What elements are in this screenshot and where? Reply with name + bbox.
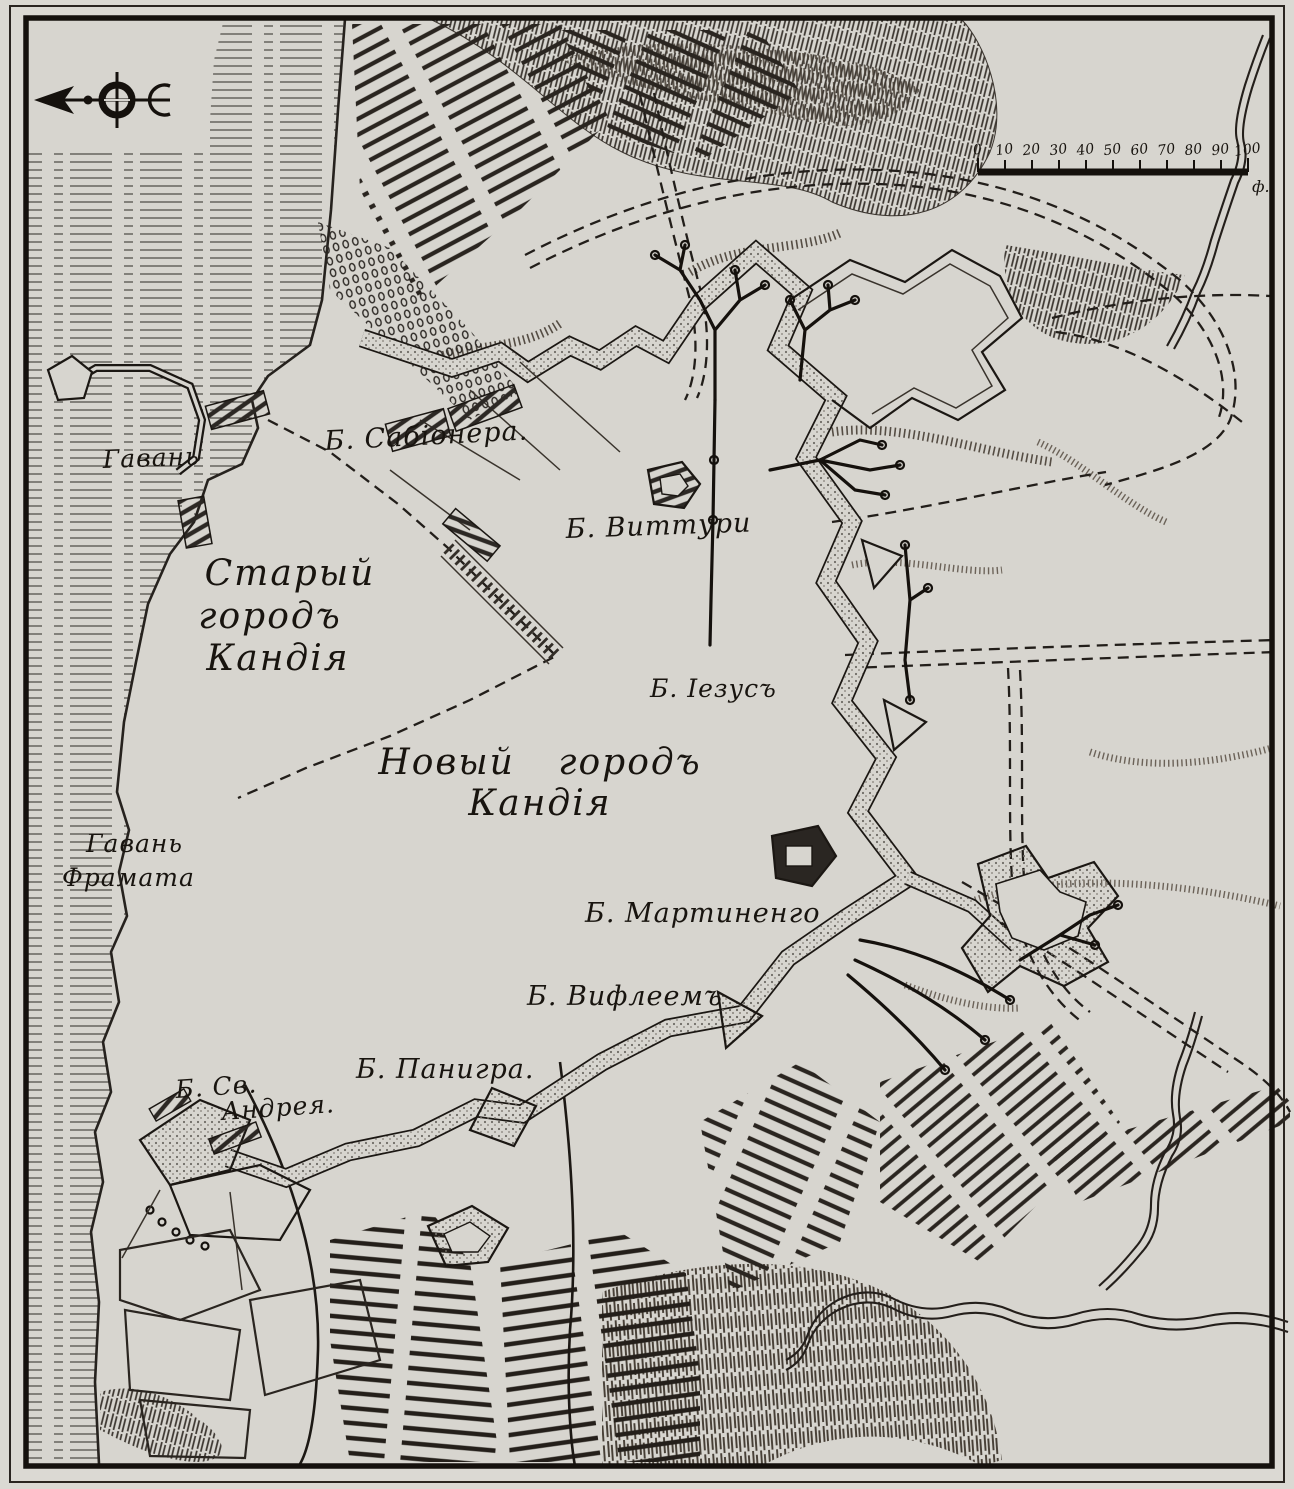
scale-tick-70: 70 (1157, 141, 1177, 159)
label-bastion-vitturi: Б. Виттури (564, 508, 752, 545)
label-old-town-2: городъ (198, 596, 341, 637)
scale-tick-30: 30 (1049, 141, 1069, 159)
label-framata-1: Гавань (85, 829, 183, 858)
scale-tick-40: 40 (1075, 141, 1096, 159)
scale-unit-label: ф. (1252, 177, 1270, 196)
label-new-town-1: Новый городъ (377, 742, 701, 783)
scale-tick-80: 80 (1184, 141, 1204, 159)
label-harbor: Гавань (101, 442, 200, 474)
label-bastion-bethlehem: Б. Вифлеемъ (526, 981, 723, 1012)
label-bastion-panigra: Б. Панигра. (355, 1054, 534, 1085)
scale-tick-60: 60 (1130, 141, 1150, 159)
scanned-map-page: Гавань Б. Сабіонера. Старый городъ Канді… (0, 0, 1294, 1489)
scale-tick-90: 90 (1211, 141, 1231, 159)
candia-siege-map: Гавань Б. Сабіонера. Старый городъ Канді… (0, 0, 1294, 1489)
scale-tick-50: 50 (1103, 141, 1123, 159)
label-new-town-2: Кандія (467, 783, 611, 824)
label-bastion-martinengo: Б. Мартиненго (584, 898, 820, 929)
label-old-town-3: Кандія (205, 638, 349, 679)
label-old-town-1: Старый (205, 553, 376, 594)
label-bastion-jesus: Б. Іезусъ (649, 674, 777, 703)
label-framata-2: Фрамата (62, 863, 195, 892)
scale-tick-10: 10 (995, 141, 1015, 159)
scale-tick-20: 20 (1021, 141, 1042, 159)
